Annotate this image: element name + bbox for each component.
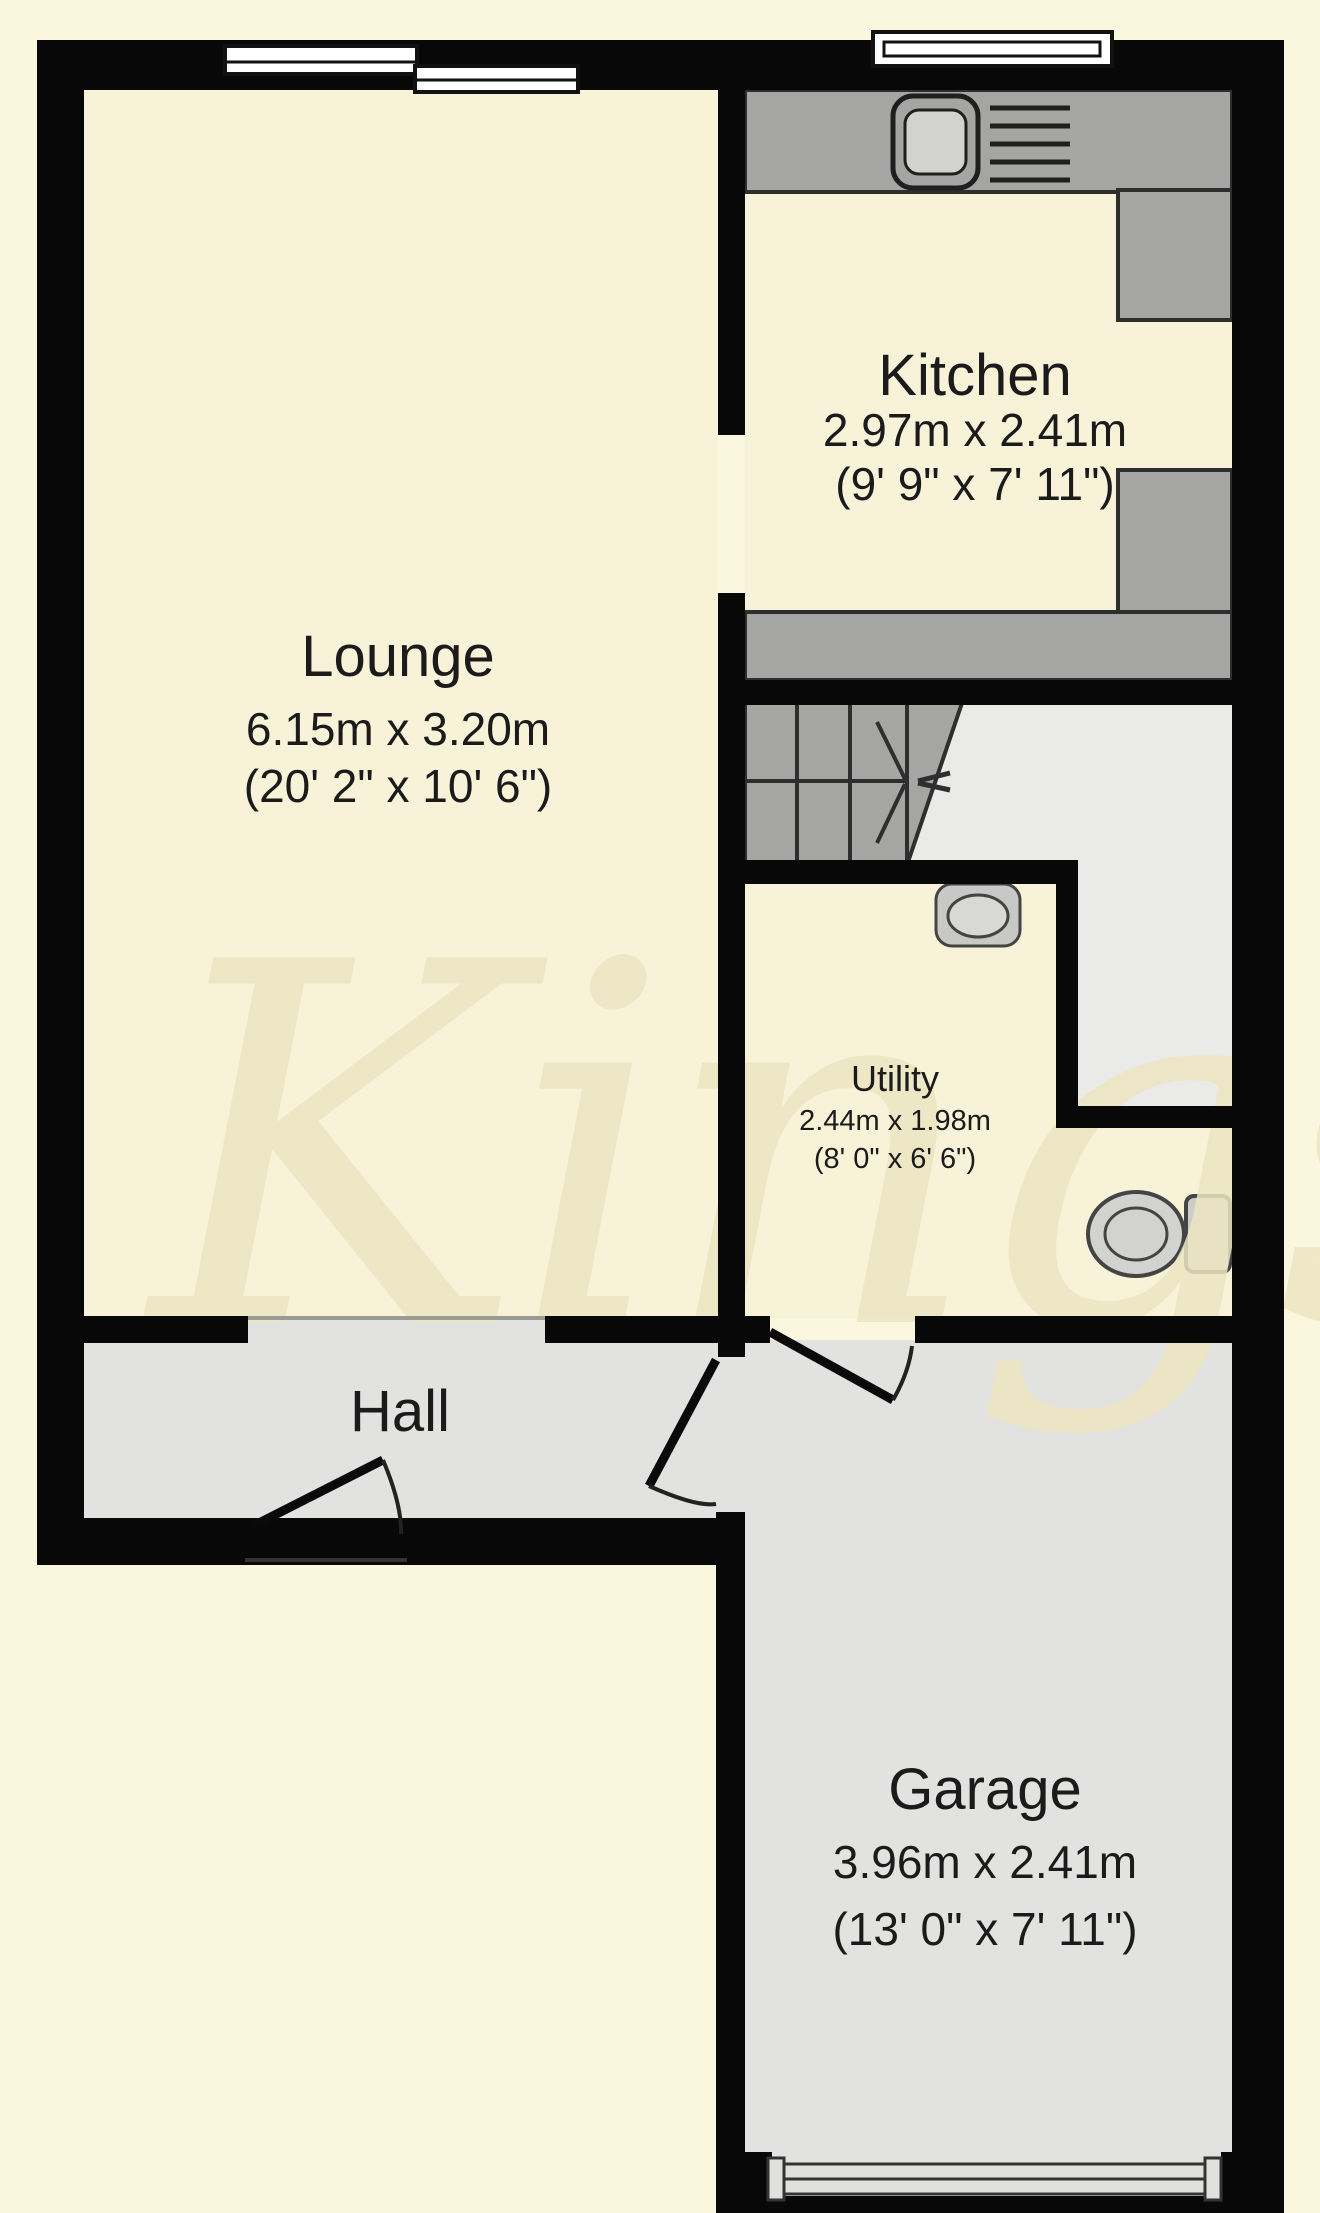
wall-divider-main <box>718 593 745 1357</box>
wall-hall-top-left <box>84 1316 248 1343</box>
garage-dimensions-metric: 3.96m x 2.41m <box>833 1838 1137 1886</box>
wall-stairs-top <box>718 680 1232 705</box>
lounge-window-right <box>415 66 578 92</box>
wall-landing-bottom <box>1056 1106 1232 1128</box>
wall-utility-bottom-stub <box>745 1316 770 1343</box>
utility-dimensions-imperial: (8' 0" x 6' 6") <box>814 1144 976 1174</box>
garage-door-track-left <box>768 2158 784 2200</box>
garage-floor <box>745 1340 1232 2164</box>
counter-bottom-band <box>745 612 1232 680</box>
counter-right-upper <box>1118 190 1232 320</box>
lounge-window-left <box>225 46 417 74</box>
kitchen-window <box>873 32 1112 66</box>
wall-hall-top-right <box>545 1316 745 1343</box>
utility-label: Utility <box>851 1060 939 1098</box>
garage-label: Garage <box>888 1760 1081 1821</box>
hall-label: Hall <box>350 1382 450 1443</box>
wall-hall-bottom <box>37 1518 745 1565</box>
wall-stairs-bottom <box>718 860 1078 884</box>
wall-kitchen-divider-upper <box>718 90 745 435</box>
kitchen-label: Kitchen <box>878 346 1071 407</box>
wall-exterior-left <box>37 40 84 1565</box>
lounge-dimensions-imperial: (20' 2" x 10' 6") <box>244 762 552 810</box>
wall-landing-left <box>1056 882 1078 1128</box>
kitchen-sink-basin <box>905 110 966 174</box>
wall-utility-bottom <box>915 1316 1232 1343</box>
wall-garage-left <box>716 1512 745 2210</box>
garage-door <box>768 2158 1221 2200</box>
utility-dimensions-metric: 2.44m x 1.98m <box>799 1106 991 1136</box>
counter-right-lower <box>1118 470 1232 614</box>
wall-exterior-right <box>1232 40 1284 2213</box>
wall-garage-bottom-strip <box>716 2196 1284 2213</box>
kitchen-dimensions-imperial: (9' 9" x 7' 11") <box>835 460 1114 508</box>
counter-top <box>745 90 1232 192</box>
kitchen-dimensions-metric: 2.97m x 2.41m <box>823 406 1127 454</box>
lounge-dimensions-metric: 6.15m x 3.20m <box>246 705 550 753</box>
garage-dimensions-imperial: (13' 0" x 7' 11") <box>832 1905 1137 1953</box>
lounge-label: Lounge <box>301 627 495 688</box>
floorplan-canvas: Kings <box>0 0 1320 2213</box>
garage-door-track-right <box>1205 2158 1221 2200</box>
